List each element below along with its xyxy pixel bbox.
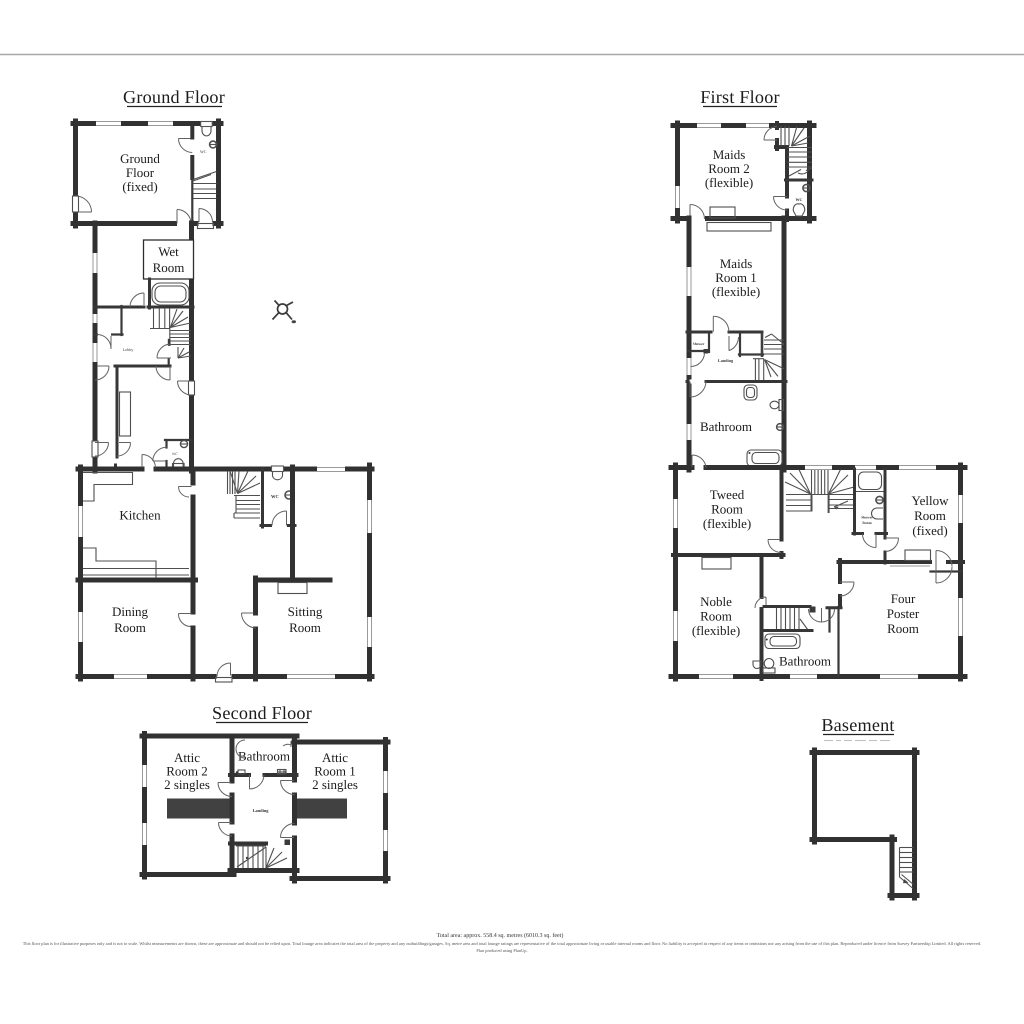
svg-text:Maids: Maids [720, 256, 753, 271]
svg-text:Room: Room [700, 609, 732, 624]
svg-text:First Floor: First Floor [700, 87, 780, 107]
svg-text:Shower: Shower [861, 516, 873, 520]
svg-text:Maids: Maids [713, 147, 746, 162]
svg-text:Floor: Floor [126, 165, 155, 180]
svg-text:Ground Floor: Ground Floor [123, 87, 225, 107]
svg-text:Room: Room [914, 508, 946, 523]
svg-text:Yellow: Yellow [912, 493, 950, 508]
svg-text:Room 1: Room 1 [715, 270, 757, 285]
svg-text:Tweed: Tweed [710, 487, 745, 502]
svg-text:Room: Room [114, 620, 146, 635]
svg-text:Kitchen: Kitchen [119, 508, 161, 523]
svg-text:(fixed): (fixed) [122, 179, 157, 194]
svg-text:2 singles: 2 singles [164, 777, 210, 792]
svg-text:WC: WC [200, 149, 207, 154]
svg-text:Shower: Shower [693, 342, 705, 346]
svg-text:WC: WC [796, 197, 803, 202]
svg-text:Room: Room [289, 620, 321, 635]
svg-text:Bathroom: Bathroom [779, 654, 831, 669]
svg-text:Second Floor: Second Floor [212, 703, 312, 723]
svg-text:Ground: Ground [120, 151, 160, 166]
svg-text:(fixed): (fixed) [912, 523, 947, 538]
svg-text:Room: Room [153, 260, 185, 275]
svg-text:(flexible): (flexible) [703, 516, 751, 531]
svg-text:Landing: Landing [253, 808, 270, 813]
svg-text:WC: WC [271, 494, 279, 499]
svg-text:Basement: Basement [821, 715, 894, 735]
svg-text:Lobby: Lobby [123, 347, 133, 352]
svg-text:(flexible): (flexible) [705, 175, 753, 190]
svg-text:Room: Room [887, 621, 919, 636]
svg-text:2 singles: 2 singles [312, 777, 358, 792]
svg-text:Bathroom: Bathroom [238, 749, 290, 764]
svg-text:Four: Four [891, 591, 916, 606]
svg-text:Sitting: Sitting [288, 604, 323, 619]
svg-text:Landing: Landing [718, 358, 734, 363]
svg-text:Room 2: Room 2 [708, 161, 750, 176]
svg-text:(flexible): (flexible) [712, 284, 760, 299]
svg-text:(flexible): (flexible) [692, 623, 740, 638]
svg-text:Room: Room [862, 521, 871, 525]
svg-text:Dining: Dining [112, 604, 149, 619]
svg-text:Noble: Noble [700, 594, 732, 609]
svg-text:Room: Room [711, 502, 743, 517]
svg-text:Total area: approx. 558.4 sq.: Total area: approx. 558.4 sq. metres (60… [437, 932, 564, 939]
svg-text:This floor plan is for illustr: This floor plan is for illustrative purp… [23, 941, 982, 946]
svg-text:Bathroom: Bathroom [700, 419, 752, 434]
svg-text:Wet: Wet [158, 244, 179, 259]
svg-text:WC: WC [172, 452, 178, 456]
svg-text:Poster: Poster [887, 606, 920, 621]
svg-text:Plan produced using PlanUp.: Plan produced using PlanUp. [476, 948, 527, 953]
